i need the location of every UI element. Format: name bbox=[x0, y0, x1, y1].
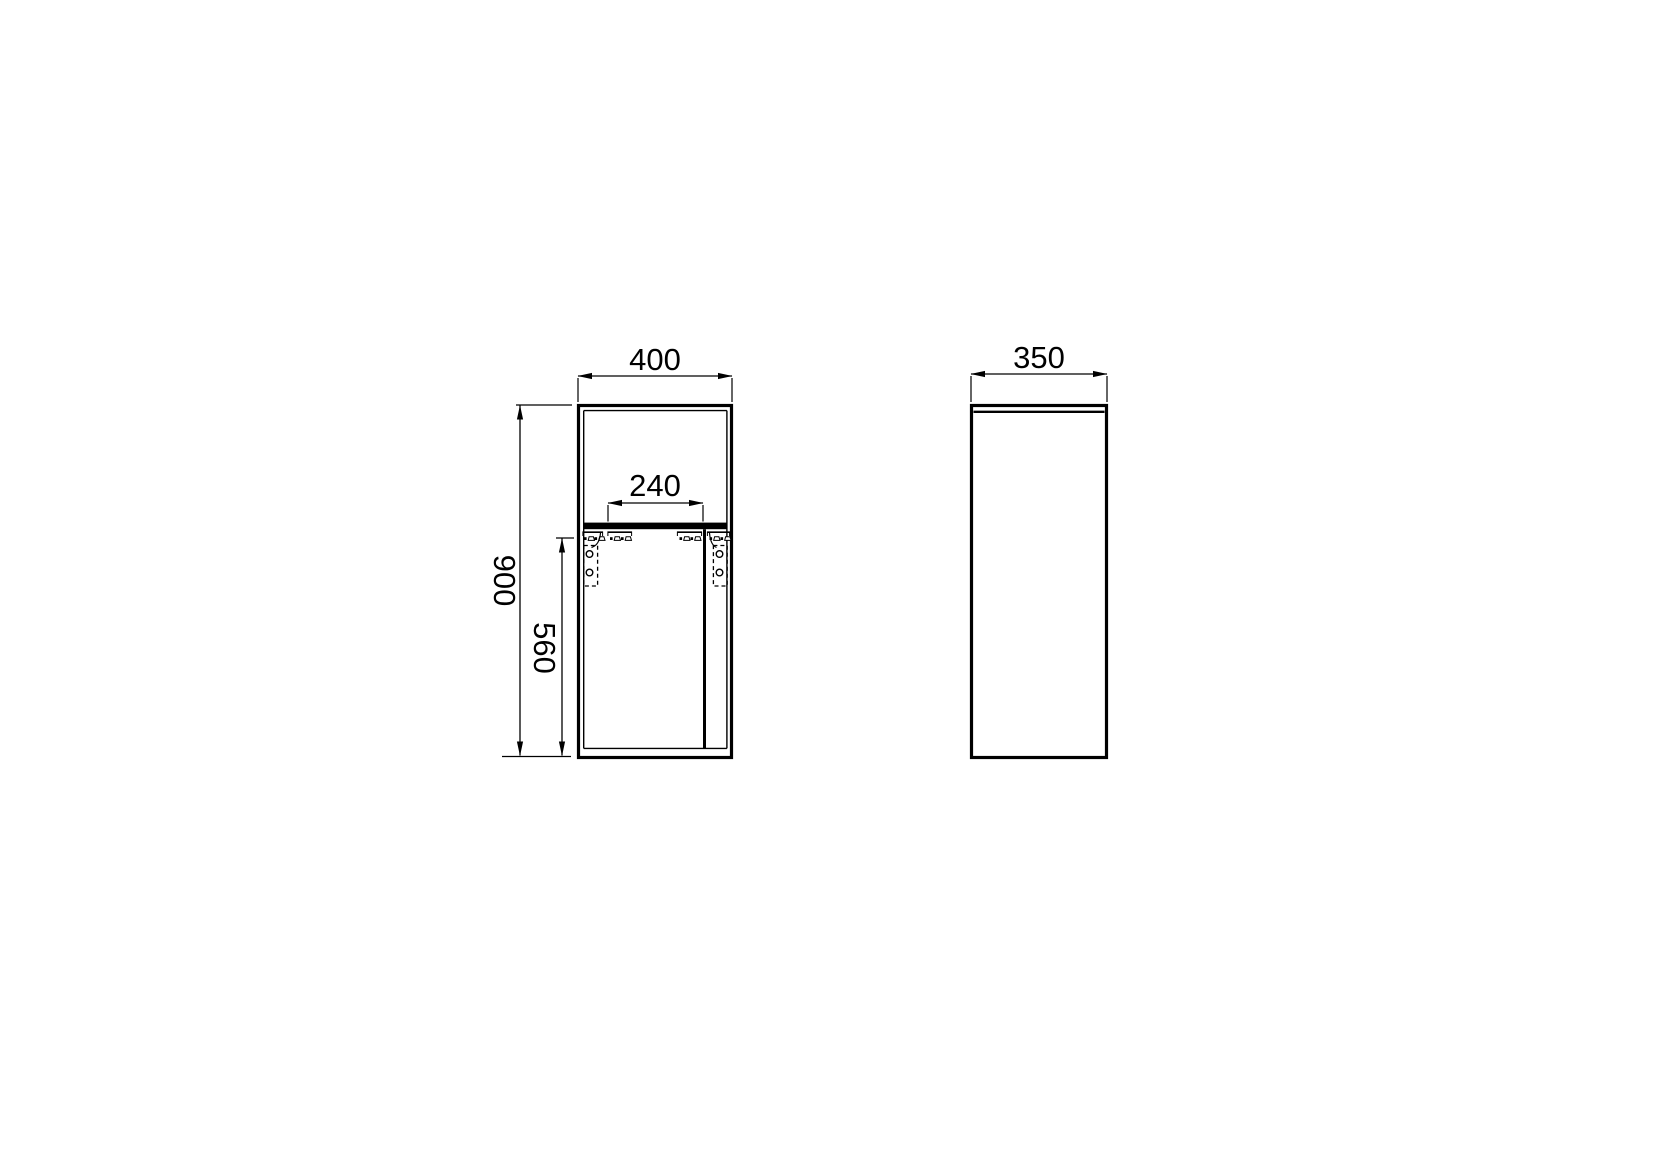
screw-hole bbox=[716, 569, 723, 576]
screw-hole bbox=[716, 551, 723, 558]
rail-slot bbox=[721, 537, 732, 541]
dim-depth: 350 bbox=[971, 340, 1107, 402]
technical-drawing: 400 240 900 560 350 bbox=[0, 0, 1653, 1167]
dim-label-depth: 350 bbox=[1013, 340, 1065, 375]
front-view bbox=[579, 406, 732, 758]
dim-door-height: 560 bbox=[527, 538, 574, 756]
dim-label-inner-width: 240 bbox=[629, 468, 681, 503]
extension-line bbox=[971, 376, 1107, 402]
screw-hole bbox=[586, 551, 593, 558]
rail-slot bbox=[610, 537, 621, 541]
dim-overall-height: 900 bbox=[487, 405, 572, 756]
drawing-sheet: 400 240 900 560 350 bbox=[0, 0, 1653, 1167]
dim-label-overall-height: 900 bbox=[487, 555, 522, 607]
side-outer-outline bbox=[972, 406, 1107, 758]
dim-overall-width: 400 bbox=[578, 342, 732, 402]
shelf-panel bbox=[584, 523, 727, 530]
dim-label-door-height: 560 bbox=[527, 622, 562, 674]
rail-slot bbox=[584, 537, 595, 541]
dim-label-overall-width: 400 bbox=[629, 342, 681, 377]
rail-slot bbox=[680, 537, 691, 541]
side-view bbox=[972, 406, 1107, 758]
extension-line bbox=[578, 378, 732, 402]
rail-slot bbox=[691, 537, 702, 541]
screw-hole bbox=[586, 569, 593, 576]
rail-slot bbox=[621, 537, 632, 541]
front-outer-outline bbox=[579, 406, 732, 758]
